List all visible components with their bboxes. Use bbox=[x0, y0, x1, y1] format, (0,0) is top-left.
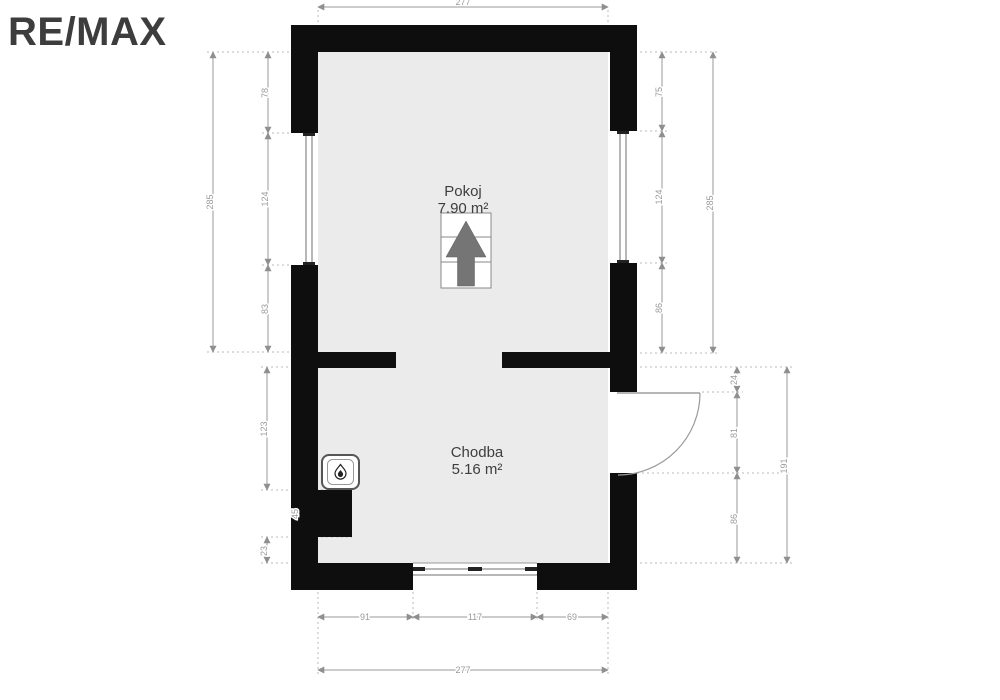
wall-right-middle bbox=[610, 263, 637, 392]
svg-text:123: 123 bbox=[259, 421, 269, 436]
svg-text:83: 83 bbox=[260, 304, 270, 314]
room-pokoj-area: 7.90 m² bbox=[438, 200, 489, 217]
floorplan-drawing: Pokoj 7.90 m² Chodba 5.16 m² 277 285 78 … bbox=[0, 0, 1000, 700]
svg-text:24: 24 bbox=[729, 375, 739, 385]
gas-boiler-icon bbox=[322, 455, 359, 489]
svg-text:23: 23 bbox=[259, 546, 269, 556]
svg-text:75: 75 bbox=[654, 87, 664, 97]
door-right bbox=[610, 392, 700, 475]
svg-text:124: 124 bbox=[260, 191, 270, 206]
chimney-block bbox=[318, 490, 352, 537]
room-passage-floor bbox=[396, 352, 502, 368]
window-right bbox=[610, 131, 637, 263]
wall-bottom-left bbox=[291, 563, 413, 590]
door-opening bbox=[610, 392, 637, 473]
dim-label-lower-right-outer: 191 bbox=[779, 458, 789, 473]
wall-top bbox=[291, 25, 637, 52]
svg-text:117: 117 bbox=[468, 612, 482, 622]
dim-label-top-total: 277 bbox=[455, 0, 470, 7]
svg-text:45: 45 bbox=[290, 509, 300, 519]
svg-text:86: 86 bbox=[729, 514, 739, 524]
svg-text:78: 78 bbox=[260, 88, 270, 98]
wall-right-upper bbox=[610, 25, 637, 131]
svg-text:91: 91 bbox=[360, 612, 370, 622]
wall-divider-left bbox=[318, 352, 396, 368]
wall-divider-right bbox=[502, 352, 610, 368]
north-arrow-icon bbox=[441, 213, 491, 288]
room-pokoj-name: Pokoj bbox=[444, 183, 482, 200]
svg-text:69: 69 bbox=[567, 612, 577, 622]
svg-text:86: 86 bbox=[654, 303, 664, 313]
svg-text:124: 124 bbox=[654, 189, 664, 204]
wall-bottom-right bbox=[537, 563, 637, 590]
floorplan-page: RE/MAX bbox=[0, 0, 1000, 700]
dim-label-bottom-outer: 277 bbox=[455, 665, 470, 675]
svg-text:81: 81 bbox=[729, 428, 739, 438]
dim-label-right-outer: 285 bbox=[705, 195, 715, 210]
room-chodba-name: Chodba bbox=[451, 444, 504, 461]
room-chodba-area: 5.16 m² bbox=[452, 461, 503, 478]
window-left bbox=[291, 133, 318, 265]
wall-left-lower bbox=[291, 265, 318, 590]
wall-left-upper bbox=[291, 25, 318, 133]
dim-label-left-outer: 285 bbox=[205, 194, 215, 209]
window-bottom bbox=[413, 563, 537, 590]
